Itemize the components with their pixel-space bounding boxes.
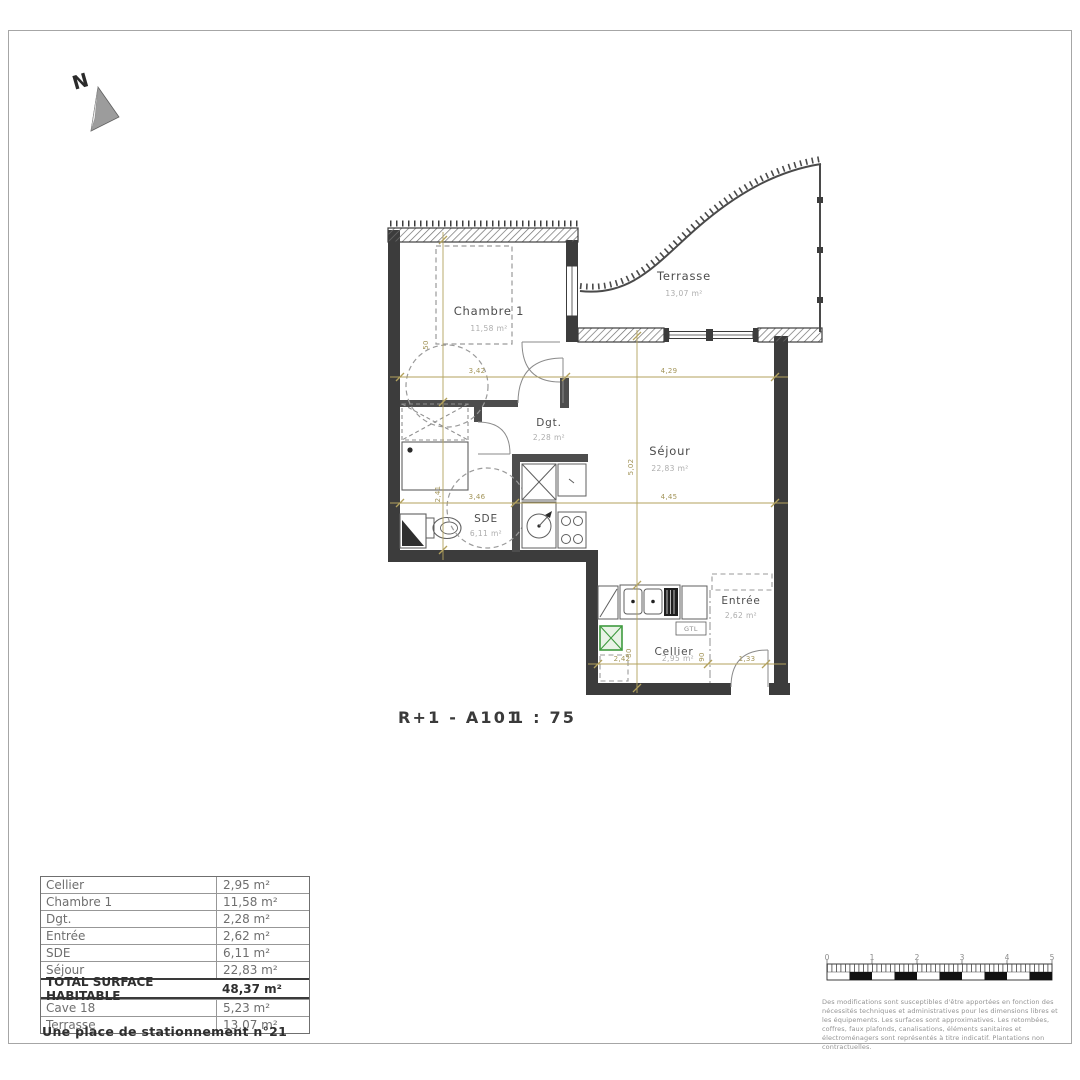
bedroom-furniture (406, 246, 512, 427)
room-area-cellier: 2,95 m² (662, 654, 694, 663)
floor-plan-sheet: N (0, 0, 1080, 1080)
row-value: 2,62 m² (217, 929, 309, 943)
wardrobe-dashed (402, 404, 468, 440)
parking-note: Une place de stationnement n°21 (42, 1024, 287, 1039)
room-area-dgt: 2,28 m² (533, 433, 565, 442)
row-label: Entrée (41, 928, 217, 944)
row-label: Dgt. (41, 911, 217, 927)
terrace-railing (580, 159, 823, 332)
table-row: Cave 18 5,23 m² (41, 999, 309, 1016)
table-row: Dgt. 2,28 m² (41, 910, 309, 927)
dim-entree-width: 1,33 (739, 655, 756, 663)
sheet-title: R+1 - A101 1 : 75 (398, 708, 576, 727)
total-value: 48,37 m² (216, 982, 309, 996)
room-area-entree: 2,62 m² (725, 611, 757, 620)
row-label: SDE (41, 945, 217, 961)
plan-reference: R+1 - A101 (398, 708, 520, 727)
surface-table: Cellier 2,95 m² Chambre 1 11,58 m² Dgt. … (40, 876, 310, 1034)
toilet-icon (433, 518, 461, 539)
north-label: N (70, 69, 91, 95)
north-arrow-icon: N (70, 69, 119, 131)
exterior-walls (388, 230, 790, 695)
plan-scale: 1 : 75 (512, 708, 576, 727)
total-label: TOTAL SURFACE HABITABLE (41, 980, 216, 997)
table-row-total: TOTAL SURFACE HABITABLE 48,37 m² (41, 978, 309, 999)
row-value: 5,23 m² (217, 1001, 309, 1015)
row-label: Cellier (41, 877, 217, 893)
row-label: Chambre 1 (41, 894, 217, 910)
row-value: 2,95 m² (217, 878, 309, 892)
table-row: Cellier 2,95 m² (41, 877, 309, 893)
scale-bar: 0 1 2 3 4 5 (825, 953, 1055, 980)
dim-entree-height: 90 (698, 652, 706, 662)
door-arc-chambre (518, 358, 563, 403)
room-area-chambre: 11,58 m² (470, 324, 507, 333)
dim-cellier-height: 30 (625, 648, 633, 658)
stove-icon (558, 512, 586, 548)
dim-sde-height: 2,41 (434, 486, 442, 503)
table-row: Entrée 2,62 m² (41, 927, 309, 944)
row-value: 11,58 m² (217, 895, 309, 909)
dim-chambre-width: 3,42 (469, 367, 486, 375)
dim-sejour-width-mid: 4,45 (661, 493, 678, 501)
room-area-sde: 6,11 m² (470, 529, 502, 538)
room-label-entree: Entrée (721, 595, 760, 607)
room-label-chambre: Chambre 1 (454, 304, 525, 318)
table-row: Chambre 1 11,58 m² (41, 893, 309, 910)
bathroom-fixtures (400, 404, 527, 548)
room-label-sejour: Séjour (649, 444, 690, 458)
dim-sde-width: 3,46 (469, 493, 486, 501)
kitchen-upper (522, 464, 586, 548)
dim-sejour-width-top: 4,29 (661, 367, 678, 375)
row-label: Cave 18 (41, 1000, 217, 1016)
room-label-terrasse: Terrasse (656, 269, 711, 283)
door-arc-sde (478, 422, 510, 454)
dim-sejour-height: 5,02 (627, 459, 635, 476)
draining-board (664, 588, 678, 616)
disclaimer-text: Des modifications sont susceptibles d'êt… (822, 998, 1064, 1053)
row-value: 2,28 m² (217, 912, 309, 926)
dim-chambre-door: 50 (422, 340, 430, 350)
technical-duct-icon (600, 626, 622, 650)
room-area-sejour: 22,83 m² (651, 464, 688, 473)
room-label-dgt: Dgt. (536, 417, 561, 429)
room-label-sde: SDE (474, 513, 498, 525)
row-value: 22,83 m² (217, 963, 309, 977)
table-row: SDE 6,11 m² (41, 944, 309, 961)
row-value: 6,11 m² (217, 946, 309, 960)
shower-drain (407, 447, 412, 452)
room-area-terrasse: 13,07 m² (665, 289, 702, 298)
gtl-label: GTL (684, 625, 698, 633)
